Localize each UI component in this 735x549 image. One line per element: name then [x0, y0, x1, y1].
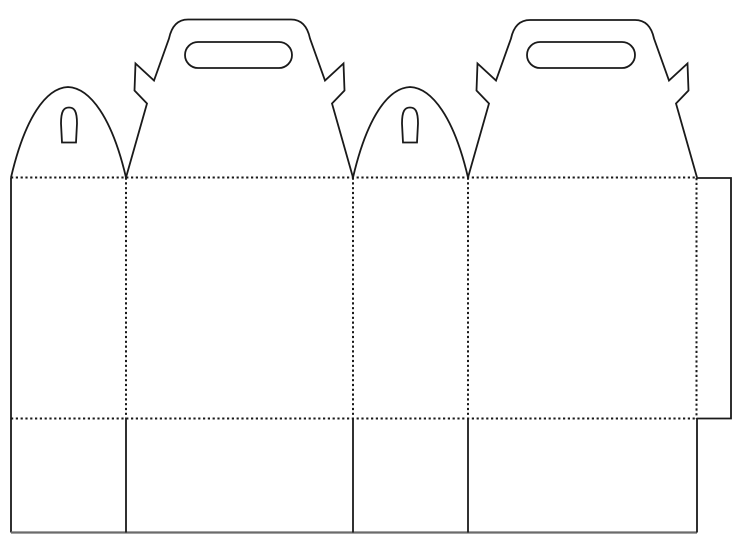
handle-cutout-1	[185, 42, 292, 68]
handle-cutout-2	[527, 42, 635, 68]
arch-slot-cutout-1	[61, 108, 77, 143]
gable-flap-outline-1	[126, 20, 353, 178]
arch-flap-outline-1	[11, 87, 126, 178]
gable-flap-outline-2	[468, 20, 697, 178]
glue-tab-outline	[697, 178, 732, 419]
arch-slot-cutout-2	[402, 108, 418, 143]
arch-flap-outline-2	[353, 87, 468, 178]
gable-box-template-svg	[0, 0, 735, 549]
die-cut-template	[0, 0, 735, 549]
